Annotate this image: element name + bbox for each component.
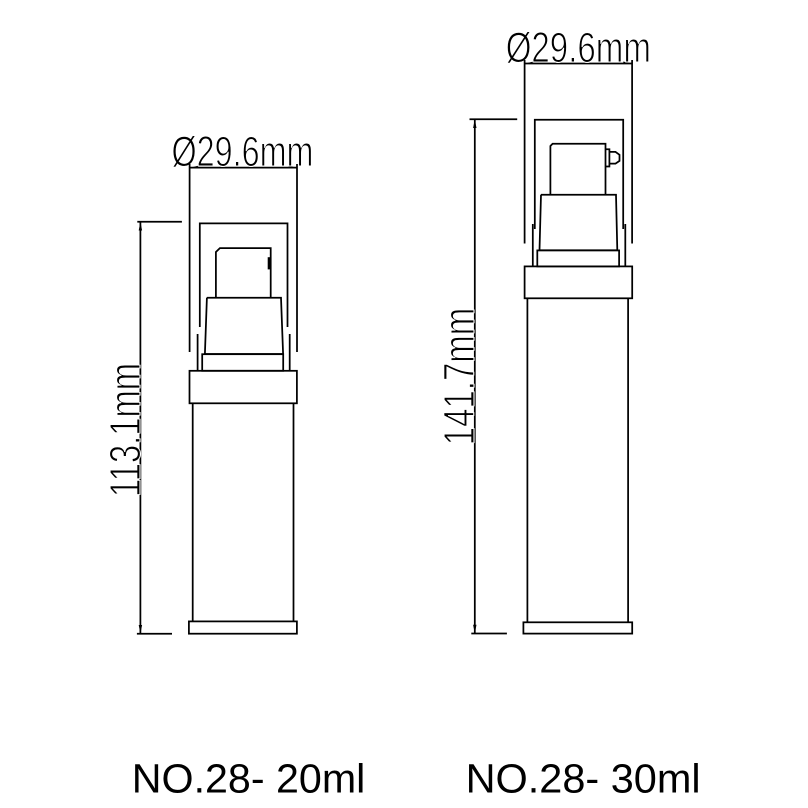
svg-text:NO.28- 20ml: NO.28- 20ml (132, 756, 365, 802)
svg-text:141.7mm: 141.7mm (435, 308, 484, 445)
svg-text:Ø29.6mm: Ø29.6mm (172, 128, 314, 176)
svg-text:NO.28- 30ml: NO.28- 30ml (466, 756, 701, 802)
svg-text:Ø29.6mm: Ø29.6mm (506, 24, 651, 72)
svg-text:113.1mm: 113.1mm (101, 363, 150, 497)
